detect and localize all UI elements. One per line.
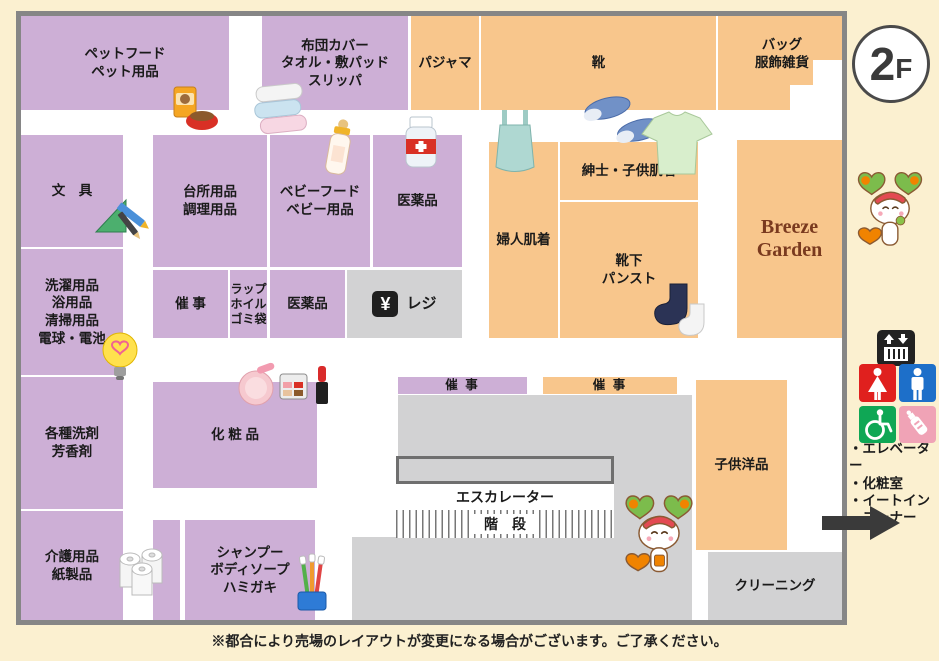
- section-label: 台所用品 調理用品: [183, 183, 237, 218]
- section-label: 布団カバー タオル・敷パッド スリッパ: [281, 37, 389, 90]
- light-bulb-icon: [96, 328, 144, 391]
- section-event-west: 催 事: [153, 270, 228, 338]
- section-label: 各種洗剤 芳香剤: [45, 425, 99, 460]
- section-register: ¥ レジ: [347, 270, 462, 338]
- section-label: 子供洋品: [715, 456, 769, 474]
- toilet-paper-icon: [116, 545, 174, 602]
- baby-bottle-icon: [318, 118, 360, 183]
- section-label: 医薬品: [287, 295, 328, 313]
- floor-map-page: ペットフード ペット用品 布団カバー タオル・敷パッド スリッパ パジャマ 靴 …: [0, 0, 939, 661]
- section-label: レジ: [406, 294, 436, 314]
- section-label: 催 事: [445, 377, 479, 393]
- section-bags: バッグ 服飾雑貨: [718, 16, 842, 110]
- escalator: エスカレーター: [396, 484, 614, 510]
- nursing-bottle-icon: [899, 406, 936, 448]
- section-label: 介護用品 紙製品: [45, 548, 99, 583]
- section-label: 催 事: [593, 377, 627, 393]
- breeze-garden-logo: Breeze Garden: [757, 216, 823, 262]
- section-event-center-right: 催 事: [543, 377, 677, 394]
- section-pajamas: パジャマ: [411, 16, 479, 110]
- section-label: 婦人肌着: [497, 231, 551, 249]
- yen-icon: ¥: [372, 291, 398, 317]
- section-label: ベビーフード ベビー用品: [280, 183, 360, 218]
- section-label: 靴: [592, 54, 606, 72]
- arrow-right-icon: [822, 504, 902, 547]
- section-breeze-garden: Breeze Garden: [737, 140, 842, 338]
- floor-map-frame: ペットフード ペット用品 布団カバー タオル・敷パッド スリッパ パジャマ 靴 …: [16, 11, 847, 625]
- section-label: 文 具: [52, 182, 93, 200]
- section-kitchen: 台所用品 調理用品: [153, 135, 267, 267]
- section-label: パジャマ: [418, 54, 471, 72]
- camisole-icon: [492, 108, 538, 181]
- stationery-icon: [90, 188, 155, 251]
- footer-note: ※都合により売場のレイアウトが変更になる場合がございます。ご了承ください。: [0, 631, 939, 651]
- floor-badge: 2 F: [852, 25, 930, 103]
- section-label: 催 事: [175, 295, 206, 313]
- section-care-paper: 介護用品 紙製品: [21, 511, 123, 620]
- dog-food-icon: [168, 85, 220, 138]
- wheelchair-icon: [859, 406, 896, 448]
- section-kids-clothing: 子供洋品: [696, 380, 787, 550]
- escalator-well: [396, 456, 614, 484]
- restroom-woman-icon: [859, 364, 896, 407]
- section-label: ラップ ホイル ゴミ袋: [230, 282, 266, 327]
- section-label: 靴下 パンスト: [602, 252, 656, 287]
- section-cleaning: クリーニング: [708, 552, 842, 620]
- t-shirt-icon: [638, 110, 716, 183]
- section-label: ペットフード ペット用品: [85, 45, 166, 80]
- section-label: シャンプー ボディソープ ハミガキ: [210, 544, 289, 597]
- section-event-center-left: 催 事: [398, 377, 527, 394]
- section-label: クリーニング: [735, 577, 816, 595]
- cosmetics-icon: [236, 360, 334, 415]
- restroom-man-icon: [899, 364, 936, 407]
- stairs: 階 段: [396, 510, 614, 538]
- mascot-character: [618, 485, 700, 592]
- section-wrap-foil: ラップ ホイル ゴミ袋: [230, 270, 267, 338]
- towels-icon: [250, 83, 312, 144]
- section-detergents: 各種洗剤 芳香剤: [21, 377, 123, 509]
- section-medicine-lower: 医薬品: [270, 270, 345, 338]
- floor-number: 2: [870, 41, 896, 87]
- section-label: 化 粧 品: [211, 426, 259, 444]
- stairs-label: 階 段: [474, 514, 536, 534]
- mascot-character: [846, 163, 934, 264]
- toothbrushes-icon: [291, 550, 333, 617]
- floor-suffix: F: [895, 55, 912, 83]
- escalator-label: エスカレーター: [456, 488, 554, 506]
- section-label: 医薬品: [397, 192, 438, 210]
- medicine-bottle-icon: [398, 113, 444, 176]
- socks-icon: [652, 282, 716, 353]
- section-label: バッグ 服飾雑貨: [732, 36, 832, 71]
